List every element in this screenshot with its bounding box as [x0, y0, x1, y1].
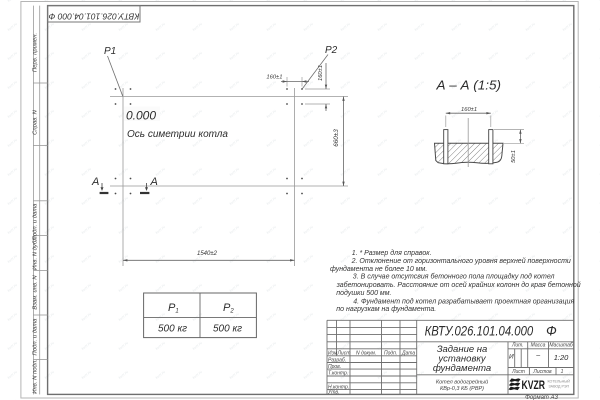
svg-text:Масштаб: Масштаб [549, 342, 573, 348]
svg-text:KVZR: KVZR [522, 378, 546, 392]
svg-text:А: А [91, 176, 99, 188]
svg-text:500 кг: 500 кг [213, 324, 242, 335]
svg-text:А: А [150, 176, 158, 188]
svg-text:Подп. и дата: Подп. и дата [33, 203, 39, 241]
svg-text:И: И [509, 354, 514, 361]
svg-text:1:20: 1:20 [554, 353, 569, 362]
svg-text:2. Отклонение от горизонтальн: 2. Отклонение от горизонтального уровня … [351, 257, 571, 265]
svg-text:3. В случае отсутсвия бетонно: 3. В случае отсутсвия бетонного пола пло… [353, 273, 555, 281]
svg-text:КВр-0,3 КБ (РВР): КВр-0,3 КБ (РВР) [440, 386, 484, 392]
svg-text:160±1: 160±1 [266, 75, 282, 81]
svg-text:Разраб.: Разраб. [328, 357, 346, 363]
svg-text:Инв. N дубл.: Инв. N дубл. [33, 236, 39, 270]
svg-text:Подп. и дата: Подп. и дата [33, 318, 39, 356]
svg-text:фундамента не более 10 мм.: фундамента не более 10 мм. [330, 265, 427, 273]
svg-text:забетонировать. Расстояние от: забетонировать. Расстояние от осей крайн… [336, 281, 581, 289]
svg-text:Подп.: Подп. [384, 351, 397, 357]
svg-text:Инв. N подл.: Инв. N подл. [33, 359, 39, 393]
svg-text:КОТЕЛЬНЫЙ: КОТЕЛЬНЫЙ [548, 380, 571, 384]
svg-text:Листов: Листов [532, 369, 552, 375]
svg-text:Утв.: Утв. [328, 390, 339, 396]
svg-text:50±1: 50±1 [511, 150, 517, 163]
svg-text:Ось симетрии котла: Ось симетрии котла [127, 129, 228, 140]
svg-text:Пров.: Пров. [328, 364, 341, 370]
svg-text:Лист: Лист [337, 351, 351, 357]
svg-text:0.000: 0.000 [126, 109, 156, 123]
svg-text:КВТУ.026.101.04.000: КВТУ.026.101.04.000 [425, 324, 534, 339]
svg-text:Т.контр.: Т.контр. [328, 371, 348, 377]
svg-text:Лист: Лист [511, 369, 525, 375]
svg-text:Котел водогрейный: Котел водогрейный [436, 378, 488, 385]
svg-text:Справ. N: Справ. N [33, 109, 39, 134]
svg-text:1540±2: 1540±2 [197, 251, 218, 257]
svg-text:Взам. инв. N: Взам. инв. N [33, 275, 39, 310]
svg-text:660±3: 660±3 [333, 129, 340, 147]
svg-text:P2: P2 [325, 45, 338, 56]
svg-text:Масса: Масса [531, 342, 546, 348]
svg-text:по нагрузкам на фундамента.: по нагрузкам на фундамента. [336, 305, 436, 313]
svg-text:Дата: Дата [401, 351, 415, 357]
svg-text:1: 1 [561, 369, 564, 375]
svg-text:4. Фундамент под котел разраб: 4. Фундамент под котел разрабатывает про… [353, 297, 574, 305]
svg-text:Перв. примен.: Перв. примен. [33, 33, 39, 72]
svg-text:подушки 500 мм.: подушки 500 мм. [336, 289, 391, 297]
svg-text:Формат А3: Формат А3 [525, 395, 558, 400]
svg-text:500 кг: 500 кг [158, 324, 187, 335]
svg-text:КВТУ.026.101.04.000 Ф: КВТУ.026.101.04.000 Ф [48, 12, 139, 22]
svg-text:Ф: Ф [546, 324, 557, 339]
svg-text:N докум.: N докум. [356, 351, 376, 357]
svg-text:P1: P1 [104, 46, 116, 57]
svg-text:Лит.: Лит. [511, 342, 524, 348]
svg-text:1. * Размер для справок.: 1. * Размер для справок. [352, 249, 432, 257]
svg-text:160±1: 160±1 [318, 65, 324, 81]
svg-text:–: – [535, 353, 540, 360]
svg-text:фундамента: фундамента [433, 363, 491, 374]
svg-text:160±1: 160±1 [461, 107, 477, 113]
svg-text:ЗАВОД РЭП: ЗАВОД РЭП [549, 385, 570, 389]
svg-text:А – А (1:5): А – А (1:5) [435, 77, 501, 92]
